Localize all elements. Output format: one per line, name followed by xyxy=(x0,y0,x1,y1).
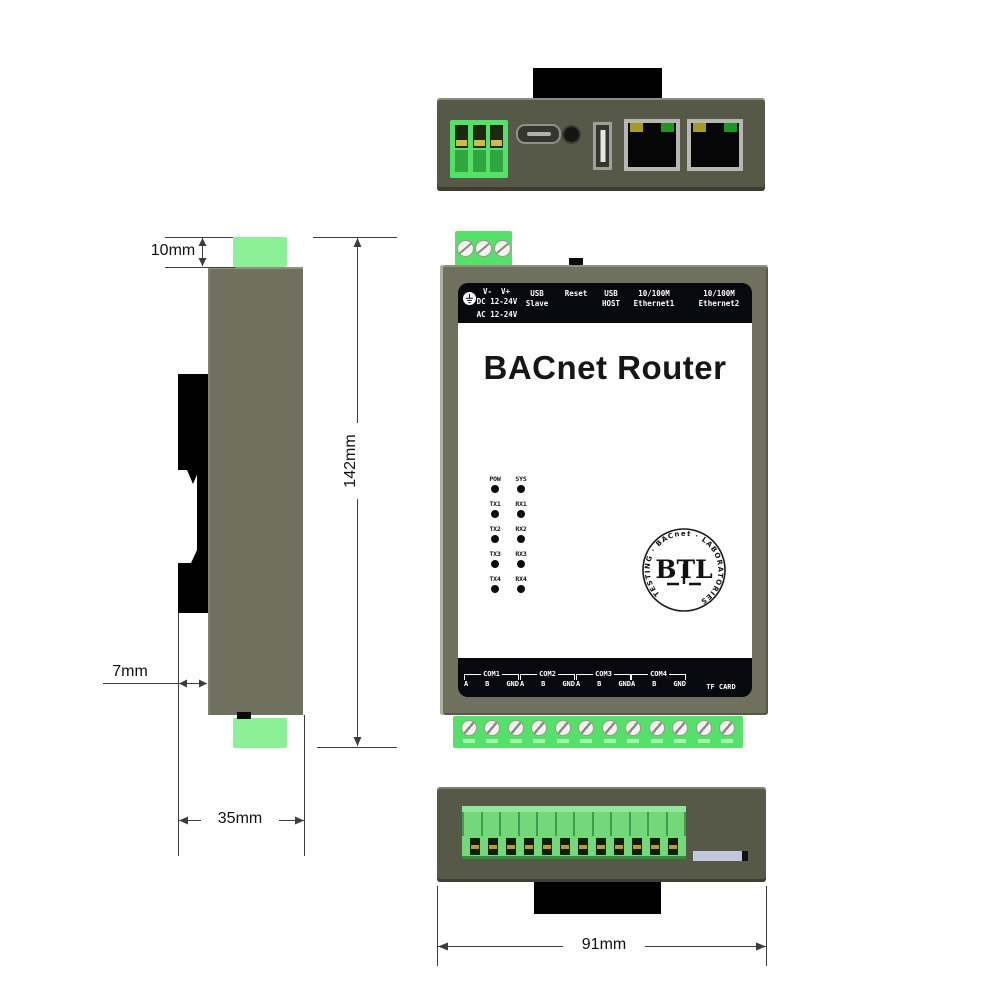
com3-pin-b: B xyxy=(597,680,601,689)
com1-label-group: COM1 ABGND xyxy=(464,671,519,689)
tf-card-slot xyxy=(693,851,748,861)
com3-pin-gnd: GND xyxy=(618,680,631,689)
front-white-panel: BACnet Router POWSYS TX1RX1 TX2RX2 TX3RX… xyxy=(458,323,752,658)
front-power-terminal xyxy=(455,231,512,266)
com4-pin-gnd: GND xyxy=(673,680,686,689)
com3-pin-a: A xyxy=(576,680,580,689)
eth1-green-led xyxy=(661,123,674,132)
din-rail-clip-side-view xyxy=(178,374,208,614)
led-dot xyxy=(517,560,525,568)
ethernet-port-1 xyxy=(624,119,680,171)
com2-pin-gnd: GND xyxy=(562,680,575,689)
com1-pin-b: B xyxy=(485,680,489,689)
led-tx3: TX3 xyxy=(482,550,508,575)
side-view-body xyxy=(208,267,303,715)
v-plus-label: V+ xyxy=(501,287,510,297)
ethernet2-line2: Ethernet2 xyxy=(689,299,749,309)
com1-pin-a: A xyxy=(464,680,468,689)
reset-label: Reset xyxy=(556,289,596,299)
side-bottom-tab xyxy=(237,712,251,719)
led-pow: POW xyxy=(482,475,508,500)
com-terminal-connector xyxy=(462,806,686,859)
led-dot xyxy=(491,560,499,568)
dim-10mm: 10mm xyxy=(146,242,200,260)
terminal-pin-windows xyxy=(450,125,508,148)
led-dot xyxy=(491,510,499,518)
power-terminal-3pin xyxy=(450,120,508,178)
terminal-pin-slots xyxy=(450,148,508,172)
reset-button xyxy=(562,125,581,144)
com4-pin-a: A xyxy=(631,680,635,689)
led-tx1: TX1 xyxy=(482,500,508,525)
com1-name: COM1 xyxy=(481,671,502,678)
led-dot xyxy=(491,485,499,493)
com4-name: COM4 xyxy=(648,671,669,678)
led-dot xyxy=(517,585,525,593)
dim-91mm: 91mm xyxy=(563,936,645,954)
tf-card-label: TF CARD xyxy=(695,682,747,692)
bottom-label-strip: COM1 ABGND COM2 ABGND COM3 ABGND COM4 AB… xyxy=(458,658,752,697)
dimension-drawing: V-V+ DC 12-24V AC 12-24V USB Slave Reset… xyxy=(0,0,1000,1000)
led-dot xyxy=(517,510,525,518)
ethernet2-label: 10/100M Ethernet2 xyxy=(689,289,749,309)
led-dot xyxy=(491,535,499,543)
side-terminal-bottom xyxy=(233,718,287,748)
eth2-green-led xyxy=(724,123,737,132)
led-sys: SYS xyxy=(508,475,534,500)
ethernet1-line1: 10/100M xyxy=(624,289,684,299)
eth2-yellow-led xyxy=(693,123,706,132)
com2-pin-b: B xyxy=(541,680,545,689)
com1-pin-gnd: GND xyxy=(506,680,519,689)
com2-pin-a: A xyxy=(520,680,524,689)
com2-name: COM2 xyxy=(537,671,558,678)
led-rx4: RX4 xyxy=(508,575,534,600)
usb-slave-label: USB Slave xyxy=(517,289,557,309)
dim-142mm: 142mm xyxy=(342,423,360,499)
v-minus-label: V- xyxy=(483,287,492,297)
led-dot xyxy=(517,485,525,493)
front-view-body: V-V+ DC 12-24V AC 12-24V USB Slave Reset… xyxy=(440,265,768,715)
ethernet-port-2 xyxy=(687,119,743,171)
com4-pin-b: B xyxy=(652,680,656,689)
front-panel-inset: V-V+ DC 12-24V AC 12-24V USB Slave Reset… xyxy=(458,283,752,697)
side-terminal-top xyxy=(233,237,287,267)
usb-slave-line1: USB xyxy=(517,289,557,299)
ethernet1-label: 10/100M Ethernet1 xyxy=(624,289,684,309)
ethernet1-line2: Ethernet1 xyxy=(624,299,684,309)
btl-certification-logo: TESTING · BACnet · LABORATORIES BTL xyxy=(641,527,727,613)
ethernet2-line1: 10/100M xyxy=(689,289,749,299)
usb-slave-line2: Slave xyxy=(517,299,557,309)
connector-pin-windows xyxy=(462,836,686,856)
com3-name: COM3 xyxy=(593,671,614,678)
dim-35mm: 35mm xyxy=(201,810,279,828)
din-rail-clip-bottom-view xyxy=(534,882,661,914)
usb-a-port xyxy=(592,121,613,171)
status-led-grid: POWSYS TX1RX1 TX2RX2 TX3RX3 TX4RX4 xyxy=(482,475,534,600)
led-dot xyxy=(517,535,525,543)
led-dot xyxy=(491,585,499,593)
led-rx3: RX3 xyxy=(508,550,534,575)
led-tx4: TX4 xyxy=(482,575,508,600)
dim-7mm: 7mm xyxy=(100,663,160,681)
com4-label-group: COM4 ABGND xyxy=(631,671,686,689)
usb-c-port xyxy=(516,124,561,144)
bottom-view-body xyxy=(437,787,766,882)
connector-ridges xyxy=(462,812,686,836)
top-view-body xyxy=(437,98,765,191)
ac-label: AC 12-24V xyxy=(474,310,520,320)
product-title: BACnet Router xyxy=(458,349,752,387)
din-rail-clip-top-view xyxy=(533,68,662,99)
led-tx2: TX2 xyxy=(482,525,508,550)
front-com-terminal-strip xyxy=(453,716,743,748)
top-label-strip: V-V+ DC 12-24V AC 12-24V USB Slave Reset… xyxy=(458,283,752,323)
led-rx2: RX2 xyxy=(508,525,534,550)
com2-label-group: COM2 ABGND xyxy=(520,671,575,689)
dc-label: DC 12-24V xyxy=(474,297,520,307)
led-rx1: RX1 xyxy=(508,500,534,525)
power-labels: V-V+ DC 12-24V AC 12-24V xyxy=(474,287,520,320)
eth1-yellow-led xyxy=(630,123,643,132)
com3-label-group: COM3 ABGND xyxy=(576,671,631,689)
